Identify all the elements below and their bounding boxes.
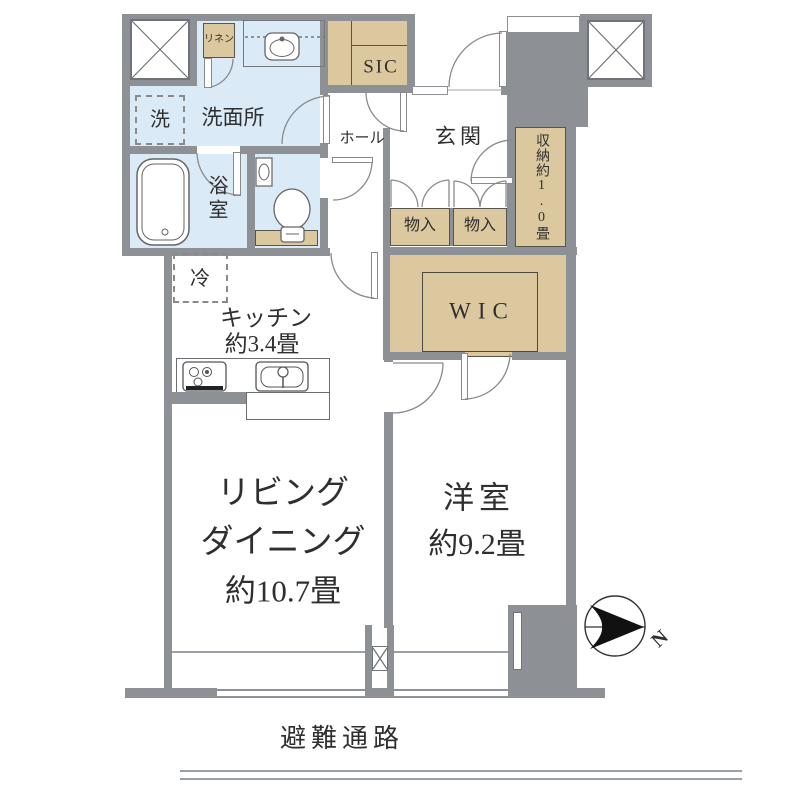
- label-linen-closet: リネン: [204, 35, 234, 45]
- label-hall: ホール: [339, 132, 384, 147]
- hall-door-leaf: [400, 92, 407, 132]
- kitchen-half-wall: [166, 392, 246, 404]
- label-kitchen-2: 約3.4畳: [225, 333, 300, 356]
- label-bathroom: 浴室: [206, 175, 226, 223]
- sic-box-left: [327, 20, 352, 87]
- closet-right-door-arcs: [454, 181, 506, 207]
- bath-door-leaf: [233, 152, 241, 196]
- hall-door-arc: [366, 93, 404, 131]
- wic-door-arc: [465, 354, 510, 399]
- sic-box-top: [351, 20, 408, 46]
- label-kitchen-1: キッチン: [220, 307, 312, 330]
- label-washing-machine: 洗: [150, 110, 170, 130]
- top-right-niche: [507, 16, 580, 33]
- kitchen-counter-top: [176, 358, 330, 393]
- label-western-room-2: 約9.2畳: [428, 530, 526, 560]
- washroom-door-leaf: [323, 95, 330, 144]
- label-storage-one: 収納約1.0畳: [534, 133, 548, 241]
- site-boundary-line: [180, 778, 742, 780]
- entrance-door-arc: [449, 33, 502, 87]
- label-living-1: リビング: [217, 478, 349, 511]
- label-living-2: ダイニング: [201, 527, 366, 560]
- label-entrance: 玄関: [435, 127, 485, 148]
- label-refrigerator: 冷: [190, 269, 210, 289]
- label-western-room-1: 洋室: [443, 483, 515, 514]
- western-room-window: [394, 689, 508, 698]
- label-north: N: [648, 627, 672, 652]
- label-closet-right: 物入: [464, 218, 496, 234]
- toilet-counter: [255, 230, 318, 246]
- bathroom-floor: [130, 154, 247, 248]
- living-window: [217, 689, 365, 698]
- floor-plan: リネン 洗 洗面所 SIC ホール 玄関 物入 物入 収納約1.0畳 浴室 WI…: [0, 0, 800, 800]
- vanity-counter: [243, 20, 325, 67]
- window-pillar-box: [372, 646, 388, 671]
- entrance-side-mass: [507, 33, 588, 127]
- corridor-door-leaf: [371, 252, 378, 299]
- pipe-space-left: [130, 19, 190, 80]
- linen-door-leaf: [204, 58, 212, 88]
- bottom-right-slot: [513, 612, 522, 670]
- label-closet-left: 物入: [404, 218, 436, 234]
- western-room-door-arc: [393, 363, 443, 413]
- kitchen-counter-return: [246, 392, 330, 420]
- site-boundary-line: [180, 770, 742, 772]
- closet-left-door-arcs: [391, 180, 449, 207]
- corridor-door-arc: [331, 253, 374, 298]
- label-evacuation-route: 避難通路: [280, 726, 404, 752]
- label-wic: WIC: [449, 300, 515, 323]
- storage-door-leaf: [471, 177, 513, 184]
- compass-north-icon: [585, 596, 645, 656]
- toilet-door-leaf: [332, 157, 373, 163]
- label-washroom: 洗面所: [202, 108, 265, 129]
- entrance-sidelight: [412, 86, 448, 95]
- label-sic: SIC: [363, 58, 399, 77]
- pipe-space-right: [587, 20, 645, 80]
- entrance-door-leaf: [499, 31, 507, 87]
- wic-door-leaf: [461, 353, 468, 400]
- toilet-door-arc: [333, 162, 372, 200]
- label-living-3: 約10.7畳: [225, 576, 341, 607]
